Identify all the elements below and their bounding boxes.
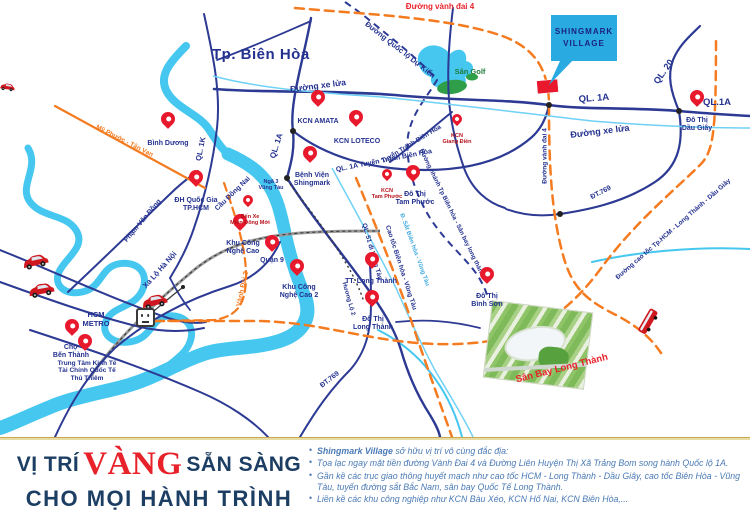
car-icon bbox=[0, 83, 15, 92]
pin-label-khu-cong-nghe-cao: Khu Công Nghệ Cao bbox=[226, 240, 259, 256]
pin-label-khu-cong-nghe-cao-2: Khu Công Nghệ Cao 2 bbox=[280, 284, 319, 300]
slogan-line-1: VỊ TRÍVÀNGSẴN SÀNG bbox=[8, 446, 310, 483]
poi-label-golf: Sân Golf bbox=[455, 68, 486, 76]
city-label: Tp. Biên Hòa bbox=[212, 46, 310, 63]
pin-label-kcn-loteco: KCN LOTECO bbox=[334, 138, 380, 146]
pin-label-thu-thiem: Trung Tâm Kinh Tế Tài Chính Quốc Tế Thủ … bbox=[58, 360, 117, 382]
bullet-item: Gần kề các trục giao thông huyết mạch nh… bbox=[308, 471, 744, 493]
slogan-part-1: VỊ TRÍ bbox=[17, 453, 80, 476]
metro-icon bbox=[136, 308, 155, 327]
pin-label-do-thi-dau-giay: Đô Thị Dầu Giây bbox=[682, 117, 712, 133]
pin-label-dh-quoc-gia: ĐH Quốc Gia TP.HCM bbox=[174, 197, 217, 213]
pin-label-binh-duong: Bình Dương bbox=[147, 140, 188, 148]
road-label-nga3-vungtau: Ngã 3 Vũng Tàu bbox=[258, 180, 283, 192]
junction-nga3-vungtau bbox=[284, 175, 290, 181]
pin-label-do-thi-long-thanh: Đô Thị Long Thành bbox=[353, 316, 393, 332]
pin-label-kcn-giang-dien: KCN Giang Điền bbox=[442, 133, 471, 146]
bullet-text: Liền kề các khu công nghiệp như KCN Bàu … bbox=[317, 494, 628, 504]
junction-vanhdai4-ql1a bbox=[546, 102, 552, 108]
metro-label: HCM METRO bbox=[82, 311, 109, 328]
footer-slogan: VỊ TRÍVÀNGSẴN SÀNG CHO MỌI HÀNH TRÌNH bbox=[8, 446, 310, 512]
pin-label-kcn-tam-phuoc: KCN Tam Phước bbox=[372, 188, 402, 201]
junction-ql1a-city bbox=[290, 128, 296, 134]
road-dt769-ext bbox=[506, 209, 560, 215]
road-label-vanh-dai-4-vert: Đường vành đai 4 bbox=[543, 128, 550, 184]
pin-label-tt-long-thanh: TT. Long Thành bbox=[345, 278, 397, 286]
pin-label-benh-vien-shingmark: Bệnh Viện Shingmark bbox=[294, 172, 330, 188]
bullet-item: Shingmark Village sở hữu vị trí vô cùng … bbox=[308, 446, 744, 457]
bullet-text: Gần kề các trục giao thông huyết mạch nh… bbox=[317, 471, 740, 492]
bus-icon bbox=[638, 308, 661, 336]
pin-label-do-thi-binh-son: Đô Thị Bình Sơn bbox=[471, 293, 502, 309]
slogan-part-3: SẴN SÀNG bbox=[186, 453, 301, 476]
slogan-line-2: CHO MỌI HÀNH TRÌNH bbox=[8, 486, 310, 512]
junction-daugiay bbox=[676, 108, 682, 114]
road-label-vanh-dai-4-top: Đường vành đai 4 bbox=[406, 3, 474, 11]
project-site-marker bbox=[537, 79, 559, 94]
slogan-highlight: VÀNG bbox=[79, 446, 186, 482]
metro-terminal-dot bbox=[181, 285, 185, 289]
bullet-item: Tọa lạc ngay mặt tiền đường Vành Đai 4 v… bbox=[308, 458, 744, 469]
bullet-text: sở hữu vị trí vô cùng đắc địa: bbox=[393, 446, 509, 456]
location-map-brochure: Tp. Biên Hòa SHINGMARK VILLAGE Đường vàn… bbox=[0, 0, 750, 530]
pin-label-ben-xe-mien-dong: Bến Xe Miền Đông Mới bbox=[230, 214, 270, 227]
bullet-lead: Shingmark Village bbox=[317, 446, 393, 456]
bullet-text: Tọa lạc ngay mặt tiền đường Vành Đai 4 v… bbox=[317, 458, 728, 468]
bullet-item: Liền kề các khu công nghiệp như KCN Bàu … bbox=[308, 494, 744, 505]
junction-dt769 bbox=[557, 211, 563, 217]
project-callout: SHINGMARK VILLAGE bbox=[551, 15, 617, 61]
callout-pointer bbox=[549, 57, 576, 85]
road-airport-access bbox=[396, 321, 480, 328]
footer-section: VỊ TRÍVÀNGSẴN SÀNG CHO MỌI HÀNH TRÌNH Sh… bbox=[0, 437, 750, 530]
pin-label-quan-9: Quận 9 bbox=[260, 257, 284, 265]
pin-label-kcn-amata: KCN AMATA bbox=[297, 118, 338, 126]
road-label-ql1a-east: QL. 1A bbox=[578, 93, 609, 105]
footer-bullets: Shingmark Village sở hữu vị trí vô cùng … bbox=[308, 446, 744, 507]
road-label-ql1a-daugiay: QL.1A bbox=[703, 98, 731, 108]
